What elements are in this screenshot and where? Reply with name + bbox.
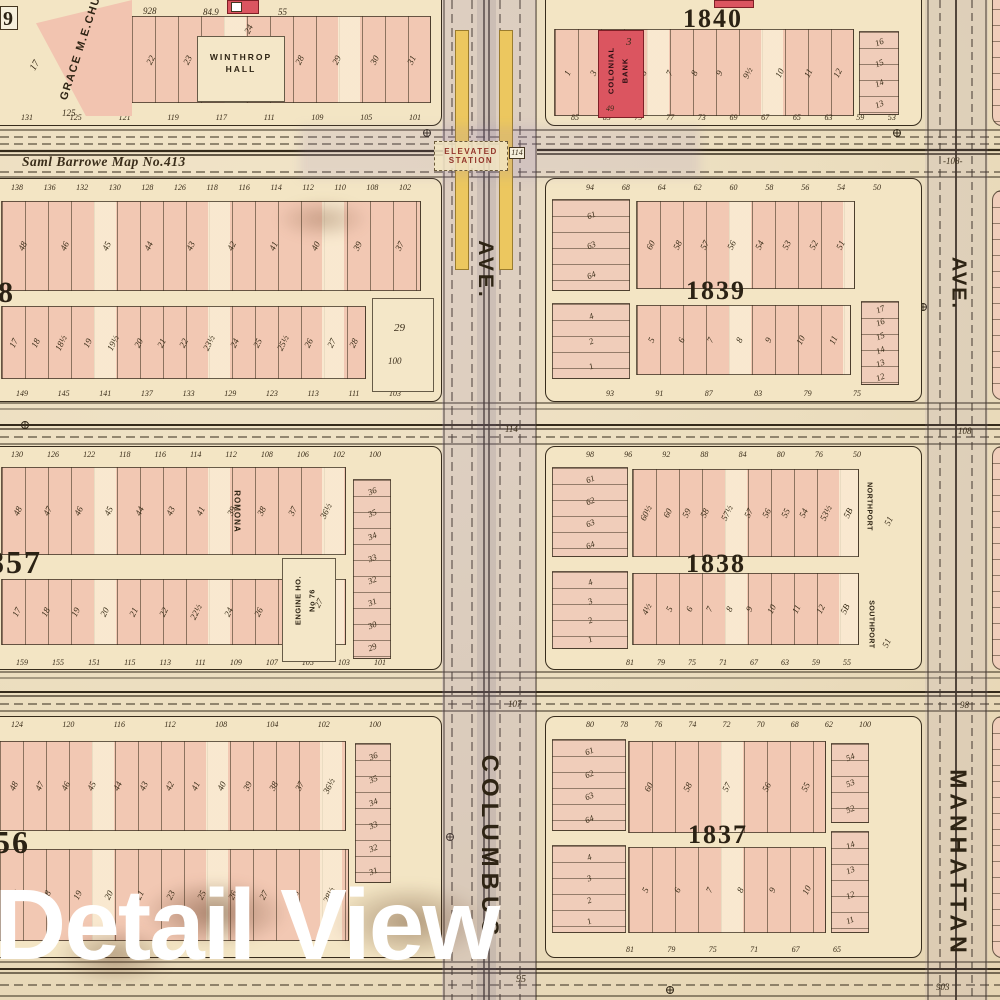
- house-number: 145: [58, 389, 70, 398]
- lot-number: 62: [584, 495, 596, 507]
- lot-number: 19: [81, 336, 94, 348]
- lot-numbers: 171818½1919½20212223½242525½262728: [2, 307, 365, 378]
- frontage-number: 124: [11, 720, 23, 729]
- lot-number: 1: [585, 916, 593, 927]
- lot-number: 53: [844, 777, 856, 789]
- lot-number: 1: [587, 360, 595, 371]
- house-number: 73: [698, 113, 706, 122]
- house-number: 149: [16, 389, 28, 398]
- lot-number: 12: [874, 371, 886, 383]
- lot-number: 53½: [818, 504, 834, 523]
- lot-number: 7: [663, 68, 674, 76]
- lot-number: 40: [309, 240, 322, 252]
- lot-number: 14: [873, 77, 885, 89]
- house-number: 71: [719, 658, 727, 667]
- lot-number: 41: [267, 240, 280, 252]
- columbus-avenue-ave: AVE.: [473, 230, 497, 310]
- house-number: 63: [825, 113, 833, 122]
- lot-number: 12: [814, 603, 827, 615]
- house-number: 151: [88, 658, 100, 667]
- lot-numbers-column: 3635343332313029: [354, 480, 390, 658]
- house-number: 113: [160, 658, 171, 667]
- lot-number: 5: [664, 605, 675, 613]
- lot-number: 2: [587, 336, 595, 347]
- lot-number: 14: [874, 344, 886, 356]
- lot-number: 33: [367, 818, 379, 830]
- block-number-1857: 857: [0, 544, 42, 581]
- house-number: 113: [307, 389, 318, 398]
- lot-number: 5B: [839, 602, 852, 615]
- station-label-line1: ELEVATED: [444, 147, 497, 156]
- house-number: 109: [311, 113, 323, 122]
- frontage-number: 112: [225, 450, 236, 459]
- lot-number: 12: [831, 66, 844, 78]
- lot-number: 4: [585, 851, 593, 862]
- lot-number: 43: [164, 505, 177, 517]
- lot-number: 32: [367, 841, 379, 853]
- frontage-number: 116: [238, 183, 249, 192]
- frontage-number: 62: [825, 720, 833, 729]
- lot-numbers-column: 421: [553, 304, 629, 378]
- lot-number: 43: [137, 780, 150, 792]
- lot-number: 7: [705, 336, 716, 344]
- house-number: 75: [688, 658, 696, 667]
- lot-number: 22: [144, 53, 157, 65]
- lot-number: 19: [69, 606, 82, 618]
- detail-view-watermark: Detail View: [0, 868, 498, 983]
- lot-number: 11: [790, 603, 803, 615]
- frontage-row: 9896928884807650: [586, 450, 861, 459]
- lot-numbers: 48474645444342414039383736½: [0, 742, 345, 830]
- lot-number: 31: [366, 596, 378, 608]
- lot-number: 54: [797, 507, 810, 519]
- block-number-1837: 1837: [688, 820, 748, 850]
- corner-number-107: 107: [508, 699, 522, 709]
- house-number: 115: [124, 658, 135, 667]
- frontage-number: 106: [297, 450, 309, 459]
- frontage-number: 138: [11, 183, 23, 192]
- lot-number: 62: [583, 768, 595, 780]
- frontage-number: 114: [270, 183, 281, 192]
- lot-number: 56: [760, 507, 773, 519]
- address-row: 149145141137133129123113111103: [16, 389, 401, 398]
- lot-number: 4: [586, 576, 594, 587]
- lot-number: 16: [873, 36, 885, 48]
- corner-number-95: 95: [516, 974, 526, 985]
- lot-number: 60: [644, 239, 657, 251]
- lot-numbers: 5678910: [629, 848, 825, 932]
- lot-number: 55: [799, 781, 812, 793]
- lot-number: 21: [128, 606, 141, 618]
- frontage-number: 64: [658, 183, 666, 192]
- lot-number: 19½: [105, 333, 121, 352]
- lot-number: 56: [760, 781, 773, 793]
- romona-label: ROMONA: [233, 482, 242, 542]
- lot-number: 9: [744, 605, 755, 613]
- lot-number: 64: [585, 269, 597, 281]
- frontage-number: 108: [261, 450, 273, 459]
- lot-number: 9½: [741, 65, 755, 79]
- lot-number: 47: [41, 505, 54, 517]
- lot-number: 13: [844, 863, 856, 875]
- frontage-number: 122: [83, 450, 95, 459]
- lot-number: 46: [58, 240, 71, 252]
- lot-number: 44: [142, 240, 155, 252]
- lot-number: 13: [873, 98, 885, 110]
- lot-number: 48: [7, 780, 20, 792]
- frontage-number: 60: [730, 183, 738, 192]
- lot-numbers-column: 4321: [553, 572, 627, 648]
- lot-number: 61: [585, 209, 597, 221]
- lot-number: 5B: [841, 506, 854, 519]
- house-number: 91: [655, 389, 663, 398]
- lot-number: 11: [802, 67, 815, 79]
- house-number: 55: [843, 658, 851, 667]
- lot-number: 18½: [53, 333, 69, 352]
- lot-number: 22: [157, 606, 170, 618]
- house-number: 75: [709, 945, 717, 954]
- lot-numbers-column: 616364: [553, 200, 629, 290]
- lot-number: 3: [585, 873, 593, 884]
- lot-number: 36: [366, 485, 378, 497]
- lot-number: 53: [780, 239, 793, 251]
- lot-number: 27: [325, 336, 338, 348]
- lot-numbers-column: 61626364: [553, 740, 625, 830]
- lot-number: 12: [844, 888, 856, 900]
- lot-number: 18: [40, 606, 53, 618]
- lot-number: 45: [85, 780, 98, 792]
- house-number: 129: [224, 389, 236, 398]
- lot-numbers-column: 14131211: [832, 832, 868, 932]
- frontage-number: 126: [174, 183, 186, 192]
- top-edge-number: 55: [278, 7, 287, 17]
- lot-number: 4: [587, 311, 595, 322]
- lot-number: 15: [873, 57, 885, 69]
- lot-number: 40: [215, 780, 228, 792]
- lot-number: 22½: [188, 603, 204, 622]
- house-number: 67: [761, 113, 769, 122]
- house-number: 59: [812, 658, 820, 667]
- lot-number: 35: [367, 772, 379, 784]
- corner-number-114: 114: [505, 424, 518, 434]
- frontage-number: 80: [586, 720, 594, 729]
- lot-number: 44: [133, 505, 146, 517]
- lot-number: 46: [72, 505, 85, 517]
- frontage-number: 68: [791, 720, 799, 729]
- house-number: 67: [750, 658, 758, 667]
- lot-number: 10: [765, 603, 778, 615]
- lot-numbers-column: 363534333231: [356, 744, 390, 882]
- house-number: 123: [266, 389, 278, 398]
- lot-number: 63: [584, 517, 596, 529]
- house-number: 131: [21, 113, 33, 122]
- street-title: Saml Barrowe Map No.413: [22, 154, 186, 170]
- lot-number: 28: [347, 336, 360, 348]
- frontage-number: 50: [853, 450, 861, 459]
- house-number: 141: [99, 389, 111, 398]
- house-number: 155: [52, 658, 64, 667]
- lot-number: 59: [680, 507, 693, 519]
- frontage-row: 130126122118116114112108106102100: [11, 450, 381, 459]
- lot-number: 63: [583, 790, 595, 802]
- lot-number: 55: [779, 507, 792, 519]
- frontage-number: 50: [873, 183, 881, 192]
- frontage-number: 84: [739, 450, 747, 459]
- lot-number: 10: [794, 334, 807, 346]
- lot-number: 54: [844, 751, 856, 763]
- frontage-row: 138136132130128126118116114112110108102: [11, 183, 411, 192]
- lot-number: 20: [132, 336, 145, 348]
- lot-number: 26: [252, 606, 265, 618]
- corner-number-903: 903: [936, 982, 950, 992]
- house-number: 93: [606, 389, 614, 398]
- southport-label: SOUTHPORT: [868, 591, 875, 659]
- house-number: 109: [230, 658, 242, 667]
- lot-number: 13: [874, 357, 886, 369]
- lot-number: 25½: [275, 333, 291, 352]
- lot-number: 48: [11, 505, 24, 517]
- lot-number: 32: [366, 574, 378, 586]
- big-lot-29: [372, 298, 434, 392]
- frontage-number: 108: [215, 720, 227, 729]
- frontage-number: 80: [777, 450, 785, 459]
- lot-number: 26: [302, 336, 315, 348]
- lot-number: 38: [255, 505, 268, 517]
- lot-number: 58: [681, 781, 694, 793]
- house-number: 85: [571, 113, 579, 122]
- house-number: 79: [804, 389, 812, 398]
- lot-number: 45: [100, 240, 113, 252]
- lot-number: 57: [698, 239, 711, 251]
- lot-number: 9: [714, 68, 725, 76]
- frontage-number: 100: [859, 720, 871, 729]
- lot-number: 37: [393, 240, 406, 252]
- lot-number: 24: [228, 336, 241, 348]
- lot-number: 5: [639, 886, 650, 894]
- frontage-number: 116: [155, 450, 166, 459]
- house-number: 101: [374, 658, 386, 667]
- lot-number: 39: [351, 240, 364, 252]
- block-number-1840: 1840: [683, 4, 743, 34]
- lot-number: 20: [98, 606, 111, 618]
- house-number: 67: [792, 945, 800, 954]
- lot-number: 28: [293, 53, 306, 65]
- frontage-row: 946864626058565450: [586, 183, 881, 192]
- frontage-number: 132: [76, 183, 88, 192]
- lot-number: 1: [586, 633, 594, 644]
- lot-numbers: 567891011: [637, 306, 850, 374]
- lot-numbers-column: 4321: [553, 846, 625, 932]
- lot-number: 36½: [318, 502, 334, 521]
- house-number: 59: [856, 113, 864, 122]
- house-number: 75: [853, 389, 861, 398]
- lot-number: 8: [724, 605, 735, 613]
- block-number-1859: 9: [0, 6, 18, 30]
- house-number: 137: [141, 389, 153, 398]
- lot-number: 45: [103, 505, 116, 517]
- lot-number: 58: [671, 239, 684, 251]
- lot-number: 11: [844, 913, 855, 925]
- frontage-number: 58: [765, 183, 773, 192]
- frontage-number: 114: [190, 450, 201, 459]
- engine-house-line1: ENGINE HO.: [294, 570, 303, 632]
- frontage-number: 68: [622, 183, 630, 192]
- corner-number-98: 98: [960, 700, 969, 710]
- address-row: 8179757167635955: [626, 658, 851, 667]
- lot-number: 31: [405, 53, 418, 65]
- lot-number: 63: [585, 239, 597, 251]
- top-edge-number: 928: [143, 6, 157, 16]
- block-number-1856: 56: [0, 824, 30, 861]
- frontage-number: 72: [723, 720, 731, 729]
- address-row: 817975716765: [626, 945, 841, 954]
- lot-number: 41: [189, 780, 202, 792]
- frontage-number: 76: [654, 720, 662, 729]
- northport-label: NORTHPORT: [866, 473, 873, 541]
- lot-number: 8: [735, 886, 746, 894]
- frontage-row: 8078767472706862100: [586, 720, 871, 729]
- lot-number: 36: [367, 749, 379, 761]
- lot-number: 17: [874, 303, 886, 315]
- frontage-number: 136: [44, 183, 56, 192]
- lot-number: 41: [194, 505, 207, 517]
- house-number: 65: [793, 113, 801, 122]
- lot-number: 46: [59, 780, 72, 792]
- lot-number: 64: [583, 813, 595, 825]
- house-number: 71: [750, 945, 758, 954]
- lot-number: 30: [368, 53, 381, 65]
- frontage-number: 116: [114, 720, 125, 729]
- lot-number: 43: [184, 240, 197, 252]
- lot-number: 42: [163, 780, 176, 792]
- frontage-number: 88: [700, 450, 708, 459]
- manhattan-house-number: -108-: [943, 156, 963, 166]
- lot-number: 22: [177, 336, 190, 348]
- frontage-number: 96: [624, 450, 632, 459]
- frontage-number: 126: [47, 450, 59, 459]
- colonial-bank-frontage: 49: [606, 104, 614, 113]
- house-number: 81: [626, 658, 634, 667]
- city-block-sliver: [992, 0, 1000, 126]
- paper-smudge: [275, 198, 370, 240]
- lot-number: 5: [646, 336, 657, 344]
- house-number: 63: [781, 658, 789, 667]
- lot-number: 44: [111, 780, 124, 792]
- house-number: 117: [216, 113, 227, 122]
- house-number: 105: [360, 113, 372, 122]
- lot-number: 60: [642, 781, 655, 793]
- frontage-number: 110: [334, 183, 345, 192]
- frontage-number: 112: [164, 720, 175, 729]
- frontage-row: 124120116112108104102100: [11, 720, 381, 729]
- station-number: 114: [509, 147, 525, 159]
- lot-numbers-column: 545352: [832, 744, 868, 822]
- frontage-number: 108: [366, 183, 378, 192]
- block-number-1858: 8: [0, 276, 15, 310]
- colonial-bank-line1: COLONIAL: [607, 36, 616, 106]
- house-number: 111: [349, 389, 360, 398]
- lot-number: 60: [661, 507, 674, 519]
- frontage-number: 102: [333, 450, 345, 459]
- red-building-label-box: [231, 2, 242, 12]
- frontage-number: 102: [318, 720, 330, 729]
- frontage-number: 120: [62, 720, 74, 729]
- lot-number: 34: [367, 795, 379, 807]
- frontage-number: 104: [266, 720, 278, 729]
- lot-number: 6: [671, 886, 682, 894]
- house-number: 103: [338, 658, 350, 667]
- lot-number: 18: [29, 336, 42, 348]
- house-number: 77: [666, 113, 674, 122]
- lot-number: 21: [155, 336, 168, 348]
- lot-numbers: 4½567891011125B: [633, 574, 858, 644]
- lot-number: 6: [675, 336, 686, 344]
- lot-number: 48: [16, 240, 29, 252]
- block-number-1839: 1839: [686, 276, 746, 306]
- lot-number: 64: [584, 539, 596, 551]
- lot-number: 61: [583, 745, 595, 757]
- lot-numbers: 60½60595857½5756555453½5B: [633, 470, 858, 556]
- lot-number: 30: [366, 618, 378, 630]
- lot-number: 23½: [201, 333, 217, 352]
- lot-number: 35: [366, 507, 378, 519]
- lot-number: 7: [703, 886, 714, 894]
- house-number: 81: [626, 945, 634, 954]
- lot-number: 1: [562, 68, 573, 76]
- lot-number: 51: [834, 239, 847, 251]
- lot-number: 56: [725, 239, 738, 251]
- lot-numbers-column: 16151413: [860, 32, 898, 114]
- lot-number: 9: [767, 886, 778, 894]
- top-edge-number: 84.9: [203, 7, 219, 17]
- lot-numbers: 6058575655: [629, 742, 825, 832]
- lot-number: 3: [587, 68, 598, 76]
- lot-number: 17: [10, 606, 23, 618]
- frontage-number: 130: [11, 450, 23, 459]
- lot-number: 2: [585, 894, 593, 905]
- frontage-number: 94: [586, 183, 594, 192]
- lot-numbers-column: 171615141312: [862, 302, 898, 384]
- lot-number: 37: [286, 505, 299, 517]
- frontage-number: 112: [302, 183, 313, 192]
- frontage-number: 100: [369, 450, 381, 459]
- frontage-number: 100: [369, 720, 381, 729]
- frontage-number: 128: [141, 183, 153, 192]
- house-number: 111: [264, 113, 275, 122]
- frontage-number: 56: [801, 183, 809, 192]
- lot-number: 52: [844, 803, 856, 815]
- manhattan-avenue-ave: AVE.: [947, 254, 970, 314]
- manhattan-avenue-name: MANHATTAN: [945, 749, 972, 979]
- lot-numbers-column: 61626364: [553, 468, 627, 556]
- lot-number: 10: [800, 884, 813, 896]
- lot-number: 61: [584, 473, 596, 485]
- lot-number: 24: [222, 606, 235, 618]
- lot-number: 29: [330, 53, 343, 65]
- lot-number: 25: [251, 336, 264, 348]
- lot-number: 57: [721, 781, 734, 793]
- lot-number: 3: [586, 595, 594, 606]
- lot-number: 14: [844, 838, 856, 850]
- lot-number: 7: [704, 605, 715, 613]
- big-lot-29-number: 29: [394, 322, 405, 334]
- frontage-number: 76: [815, 450, 823, 459]
- lot-number: 47: [33, 780, 46, 792]
- winthrop-hall-line1: WINTHROP: [199, 52, 283, 62]
- lot-number: 52: [807, 239, 820, 251]
- big-lot-29-frontage: 100: [388, 356, 402, 366]
- lot-number: 38: [267, 780, 280, 792]
